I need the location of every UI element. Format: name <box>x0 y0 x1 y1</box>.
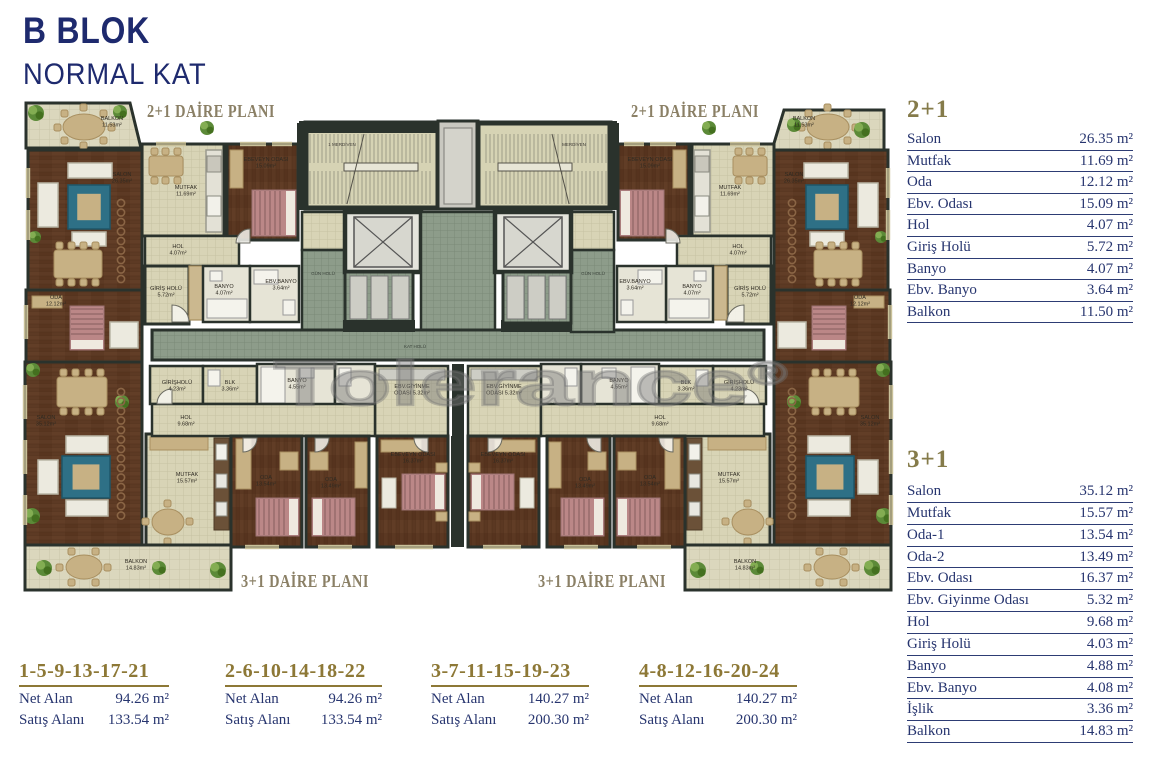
svg-text:SALON35.12m²: SALON35.12m² <box>36 415 56 428</box>
svg-text:SALON26.35m²: SALON26.35m² <box>784 172 804 185</box>
svg-text:MERDİVEN: MERDİVEN <box>562 141 586 147</box>
svg-text:BALKON14.83m²: BALKON14.83m² <box>734 559 756 572</box>
svg-text:BALKON11.53m²: BALKON11.53m² <box>793 116 815 129</box>
svg-text:GÜN HOLÜ: GÜN HOLÜ <box>311 270 335 276</box>
svg-text:MUTFAK11.69m²: MUTFAK11.69m² <box>719 185 742 198</box>
svg-text:BALKON11.53m²: BALKON11.53m² <box>101 116 123 129</box>
svg-text:BALKON14.83m²: BALKON14.83m² <box>125 559 147 572</box>
svg-text:1 MERDİVEN: 1 MERDİVEN <box>328 141 356 147</box>
svg-text:SALON26.35m²: SALON26.35m² <box>112 172 132 185</box>
svg-text:SALON35.12m²: SALON35.12m² <box>860 415 880 428</box>
svg-text:MUTFAK15.57m²: MUTFAK15.57m² <box>718 472 741 485</box>
svg-text:BANYO4.07m²: BANYO4.07m² <box>682 284 702 297</box>
svg-text:MUTFAK11.69m²: MUTFAK11.69m² <box>175 185 198 198</box>
svg-text:BANYO4.07m²: BANYO4.07m² <box>214 284 234 297</box>
svg-text:MUTFAK15.57m²: MUTFAK15.57m² <box>176 472 199 485</box>
svg-text:GÜN HOLÜ: GÜN HOLÜ <box>581 270 605 276</box>
